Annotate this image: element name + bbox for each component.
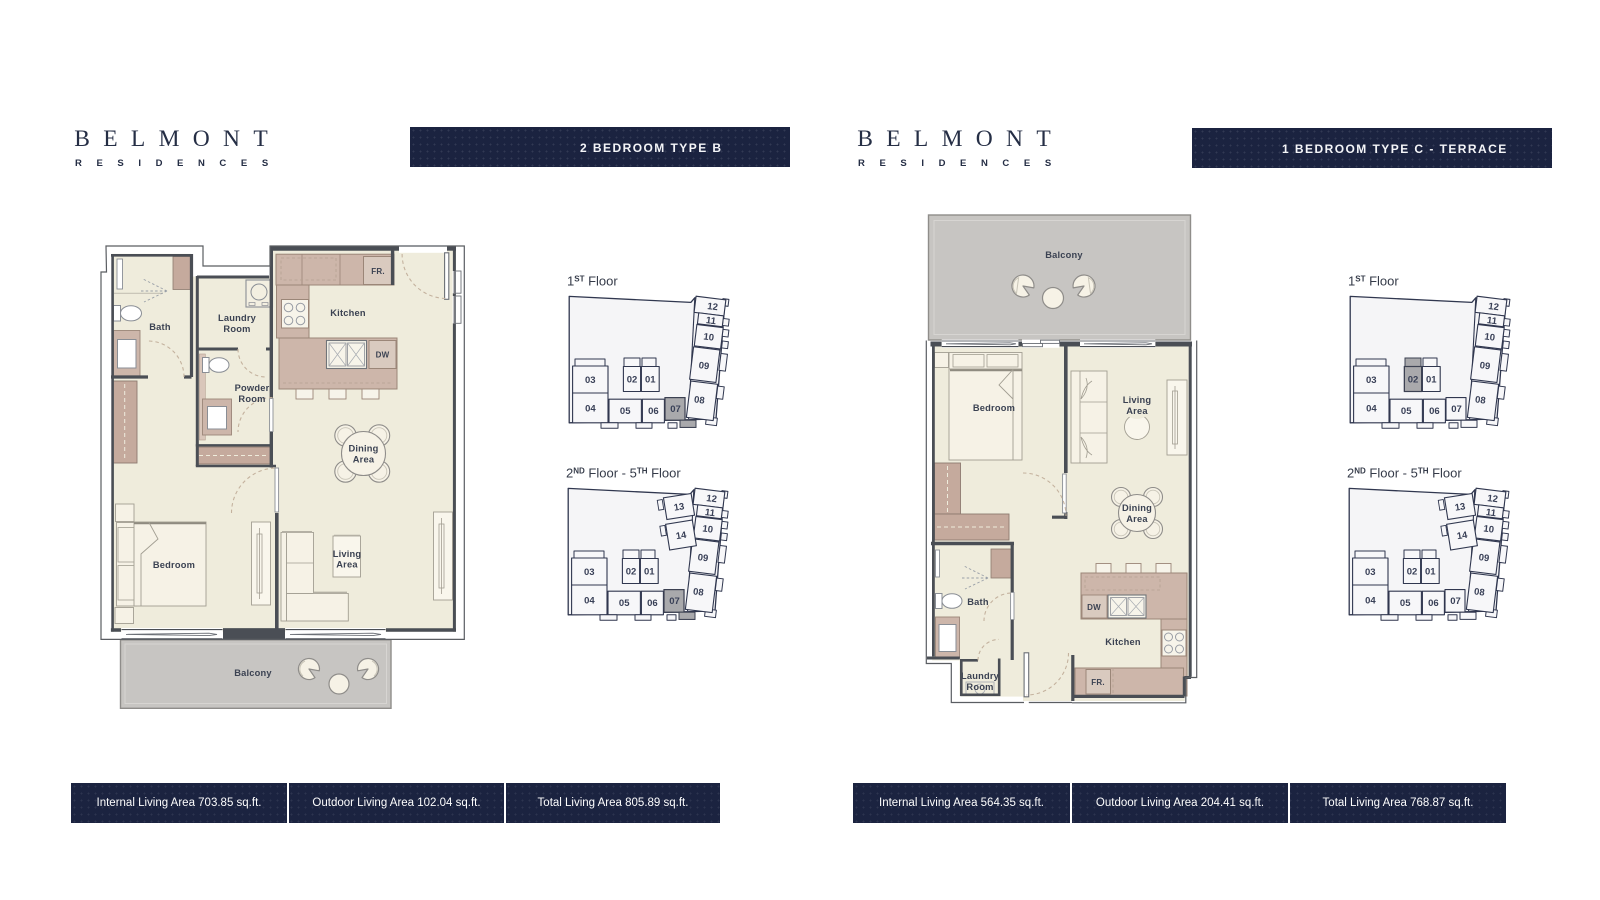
svg-text:FR.: FR. — [371, 267, 385, 276]
svg-text:Living: Living — [1123, 395, 1152, 405]
svg-text:Dining: Dining — [348, 444, 378, 454]
svg-text:Balcony: Balcony — [234, 668, 272, 678]
svg-text:Area: Area — [1126, 406, 1148, 416]
svg-text:Bath: Bath — [149, 322, 171, 332]
svg-text:Laundry: Laundry — [218, 313, 257, 323]
svg-text:1ST Floor: 1ST Floor — [567, 274, 618, 289]
svg-text:Bedroom: Bedroom — [153, 560, 195, 570]
svg-text:Kitchen: Kitchen — [1105, 637, 1141, 647]
svg-text:Area: Area — [1126, 514, 1148, 524]
svg-text:Living: Living — [333, 549, 362, 559]
svg-text:Area: Area — [353, 455, 375, 465]
svg-text:Balcony: Balcony — [1045, 250, 1083, 260]
svg-text:Room: Room — [966, 682, 993, 692]
svg-text:2ND Floor - 5TH Floor: 2ND Floor - 5TH Floor — [1347, 466, 1462, 481]
svg-text:Kitchen: Kitchen — [330, 308, 366, 318]
svg-text:Area: Area — [336, 560, 358, 570]
svg-text:1ST Floor: 1ST Floor — [1348, 274, 1399, 289]
svg-text:Dining: Dining — [1122, 503, 1152, 513]
svg-text:Powder: Powder — [235, 383, 270, 393]
svg-text:DW: DW — [376, 351, 390, 360]
svg-text:Room: Room — [238, 394, 265, 404]
svg-text:FR.: FR. — [1091, 678, 1105, 687]
svg-text:2ND Floor - 5TH Floor: 2ND Floor - 5TH Floor — [566, 466, 681, 481]
svg-text:Bath: Bath — [967, 597, 989, 607]
svg-text:DW: DW — [1087, 603, 1101, 612]
svg-text:Bedroom: Bedroom — [973, 403, 1015, 413]
svg-text:Laundry: Laundry — [961, 671, 1000, 681]
svg-text:Room: Room — [223, 324, 250, 334]
